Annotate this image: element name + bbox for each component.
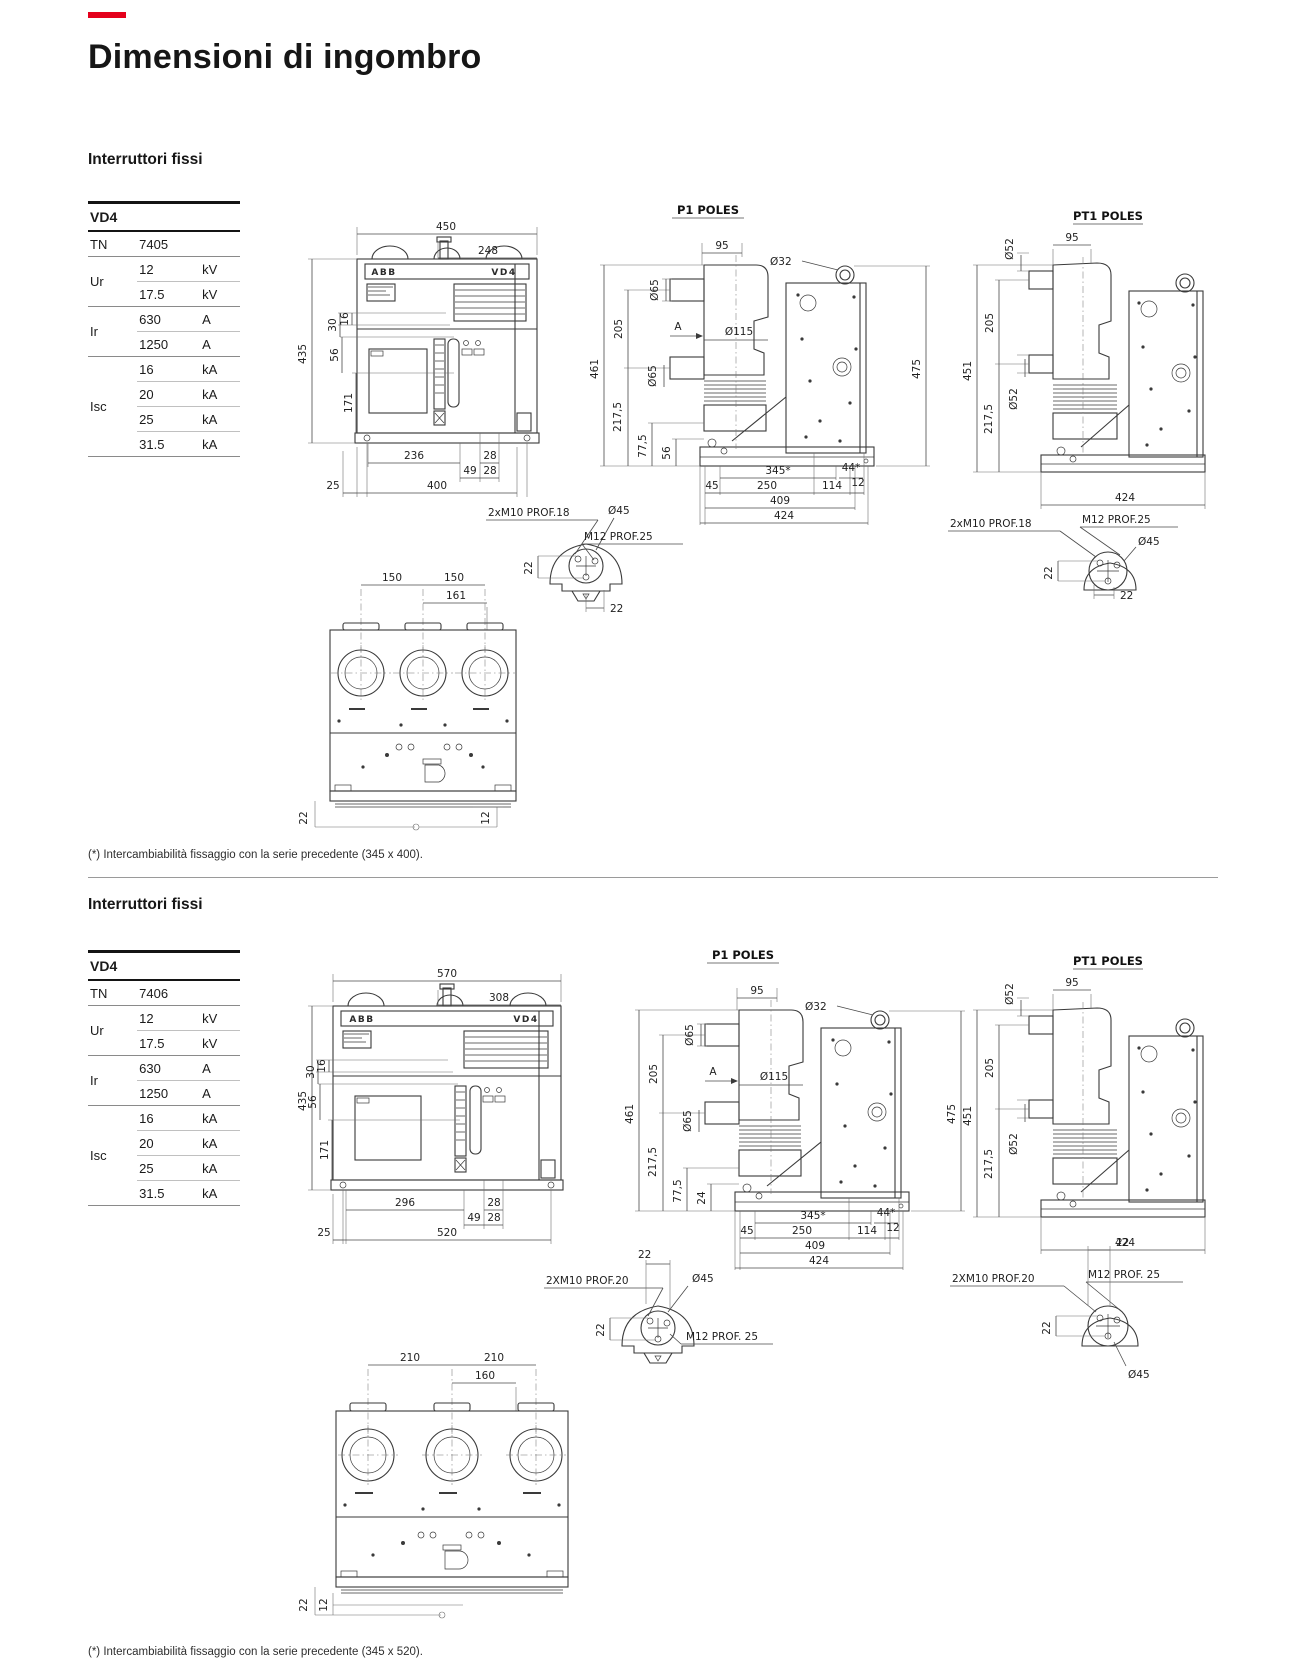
dim-label: 95 (715, 240, 728, 252)
leader-lines (950, 1250, 1183, 1366)
dim-label: 44* (877, 1207, 896, 1219)
dim-label: 25 (317, 1227, 330, 1239)
dim-label: 77,5 (672, 1179, 684, 1202)
dim-label: Ø65 (649, 279, 661, 301)
p1-poles-drawing-1: P1 POLES (558, 199, 938, 531)
dim-label: Ø45 (1138, 536, 1160, 548)
dim-label: 150 (444, 572, 464, 584)
dim-label: 217,5 (983, 1149, 995, 1179)
section-1-content: VD4 TN 7405 Ur 12 kV 17.5 kV Ir 630 A 12… (88, 195, 1218, 843)
row-unit: kA (200, 1156, 240, 1181)
row-unit: kA (200, 382, 240, 407)
dim-label: 56 (307, 1095, 319, 1109)
dim-label: Ø65 (682, 1110, 694, 1132)
bottom-view-drawing-1: 150 150 161 (303, 535, 543, 843)
dim-label: 171 (343, 393, 355, 413)
dim-label: 28 (487, 1212, 500, 1224)
row-value: 31.5 (137, 432, 200, 457)
pin-spec-label: M12 PROF.25 (584, 531, 653, 543)
row-value: 1250 (137, 1081, 200, 1106)
dim-label: 49 (463, 465, 476, 477)
dim-label: 250 (757, 480, 777, 492)
row-unit: kA (200, 357, 240, 382)
table-title: VD4 (88, 952, 240, 981)
row-value: 16 (137, 357, 200, 382)
footnote-1: (*) Intercambiabilità fissaggio con la s… (88, 849, 1218, 861)
bolt-holes (575, 556, 598, 599)
dimension-lines (361, 585, 487, 603)
row-unit: A (200, 307, 240, 332)
front-view-drawing-1: ABB VD4 450 248 435 30 16 56 (288, 201, 558, 519)
dim-label: 95 (1065, 977, 1078, 989)
terminal-detail-right-2: 22 2XM10 PROF.20 M12 PROF. 25 Ø45 22 (938, 1230, 1188, 1400)
dim-label: 22 (638, 1249, 651, 1261)
dim-label: 451 (962, 1106, 974, 1126)
bolt-spec-label: 2xM10 PROF.18 (950, 518, 1032, 530)
dim-label: 56 (329, 348, 341, 362)
dim-label: 205 (613, 319, 625, 339)
dim-label: 236 (404, 450, 424, 462)
dim-label: 150 (382, 572, 402, 584)
bottom-view-drawing-2: 210 210 160 (303, 1295, 573, 1627)
row-value: 630 (137, 1056, 200, 1081)
brand-label: ABB (349, 1015, 374, 1025)
dim-label: 171 (319, 1140, 331, 1160)
dim-label: 49 (467, 1212, 480, 1224)
pole-outline (1029, 263, 1205, 472)
row-value: 12 (137, 1006, 200, 1031)
bottom-dim-lines (315, 1587, 463, 1618)
dim-label: 461 (589, 359, 601, 379)
pole-details (735, 1038, 909, 1208)
dim-label: 210 (400, 1352, 420, 1364)
dim-label: Ø52 (1004, 983, 1016, 1005)
dim-label: Ø65 (684, 1024, 696, 1046)
drawing-title: P1 POLES (677, 203, 739, 217)
dim-label: Ø115 (760, 1071, 788, 1083)
dim-label: 114 (857, 1225, 877, 1237)
dim-label: 22 (1043, 566, 1055, 579)
dim-label: 12 (318, 1598, 330, 1611)
dim-label: 28 (483, 465, 496, 477)
dim-label: 217,5 (983, 404, 995, 434)
row-value: 17.5 (137, 1031, 200, 1056)
row-label: Isc (88, 1106, 137, 1206)
bolt-spec-label: 2XM10 PROF.20 (952, 1273, 1035, 1285)
dim-label: 424 (809, 1255, 829, 1267)
p1-poles-drawing-2: P1 POLES (593, 944, 973, 1276)
footnote-2: (*) Intercambiabilità fissaggio con la s… (88, 1646, 1218, 1658)
breaker-details (340, 1034, 554, 1188)
row-value: 16 (137, 1106, 200, 1131)
dim-label: 248 (478, 245, 498, 257)
datasheet-page: Dimensioni di ingombro Interruttori fiss… (0, 0, 1306, 1662)
dim-label: 160 (475, 1370, 495, 1382)
dim-label: 520 (437, 1227, 457, 1239)
row-label: Isc (88, 357, 137, 457)
row-value: 7405 (137, 231, 240, 257)
row-unit: kV (200, 257, 240, 282)
pole-outline (670, 265, 874, 466)
dim-label: 22 (298, 811, 310, 824)
row-unit: kA (200, 407, 240, 432)
section-arrow-label: A (709, 1066, 717, 1078)
dim-label: 24 (696, 1191, 708, 1205)
row-value: 31.5 (137, 1181, 200, 1206)
dim-label: 217,5 (612, 402, 624, 432)
row-unit: A (200, 1081, 240, 1106)
front-view-drawing-2: ABB VD4 570 308 435 30 16 56 (298, 948, 598, 1266)
row-unit: A (200, 1056, 240, 1081)
drawing-title: PT1 POLES (1073, 209, 1143, 223)
bottom-dim-lines (315, 801, 503, 830)
dim-label: 22 (595, 1323, 607, 1336)
dim-label: 56 (661, 446, 673, 460)
dim-label: 114 (822, 480, 842, 492)
pole-outline (1029, 1008, 1205, 1217)
pole-details (700, 293, 874, 463)
dim-label: 450 (436, 221, 456, 233)
dim-label: 570 (437, 968, 457, 980)
dim-label: 25 (326, 480, 339, 492)
row-unit: kA (200, 1106, 240, 1131)
dim-label: 345* (800, 1210, 825, 1222)
row-value: 25 (137, 1156, 200, 1181)
row-value: 7406 (137, 980, 240, 1006)
abb-red-dash (88, 12, 126, 18)
breaker-details (364, 287, 530, 441)
dim-label: 16 (316, 1059, 328, 1073)
row-value: 12 (137, 257, 200, 282)
dim-label: 424 (774, 510, 794, 522)
page-title: Dimensioni di ingombro (88, 38, 1218, 77)
row-unit: kA (200, 1131, 240, 1156)
dim-label: 22 (1041, 1321, 1053, 1334)
dim-label: 205 (984, 1058, 996, 1078)
row-label: Ir (88, 1056, 137, 1106)
extension-lines (1056, 1246, 1110, 1336)
row-value: 630 (137, 307, 200, 332)
spec-table-1: VD4 TN 7405 Ur 12 kV 17.5 kV Ir 630 A 12… (88, 201, 240, 457)
dim-label: 400 (427, 480, 447, 492)
bolt-spec-label: 2xM10 PROF.18 (488, 507, 570, 519)
row-label: Ir (88, 307, 137, 357)
section-heading-1: Interruttori fissi (88, 151, 1218, 169)
dim-label: 77,5 (637, 434, 649, 457)
row-value: 17.5 (137, 282, 200, 307)
pt1-poles-drawing-1: PT1 POLES (933, 205, 1233, 515)
row-value: 1250 (137, 332, 200, 357)
pin-spec-label: M12 PROF.25 (1082, 514, 1151, 526)
dim-label: 45 (705, 480, 718, 492)
dim-label: 22 (1116, 1237, 1129, 1249)
dim-label: 12 (480, 811, 492, 824)
dim-label: 205 (648, 1064, 660, 1084)
dim-label: 22 (610, 603, 623, 615)
dim-label: Ø52 (1008, 388, 1020, 410)
dim-label: 250 (792, 1225, 812, 1237)
dim-label: Ø45 (692, 1273, 714, 1285)
dim-label: 461 (624, 1104, 636, 1124)
row-unit: kV (200, 1031, 240, 1056)
dim-label: Ø52 (1004, 238, 1016, 260)
dim-label: 16 (339, 312, 351, 326)
dim-label: 409 (770, 495, 790, 507)
dim-label: Ø52 (1008, 1133, 1020, 1155)
dim-label: 22 (1120, 590, 1133, 602)
dim-label: 409 (805, 1240, 825, 1252)
dim-label: Ø45 (608, 505, 630, 517)
section-arrow-label: A (674, 321, 682, 333)
pt1-poles-drawing-2: PT1 POLES (933, 950, 1233, 1260)
dim-label: 22 (298, 1598, 310, 1611)
dim-label: 345* (765, 465, 790, 477)
dim-label: 95 (750, 985, 763, 997)
dim-label: 28 (487, 1197, 500, 1209)
dim-label: Ø65 (647, 365, 659, 387)
dim-label: 44* (842, 462, 861, 474)
dim-label: 451 (962, 361, 974, 381)
row-unit: kV (200, 282, 240, 307)
dimension-lines (977, 990, 1205, 1250)
section-divider (88, 877, 1218, 878)
dim-label: 45 (740, 1225, 753, 1237)
extension-lines (538, 556, 604, 612)
dim-label: 296 (395, 1197, 415, 1209)
dim-label: Ø32 (770, 256, 792, 268)
bolt-holes (1096, 1314, 1120, 1339)
dim-label: 308 (489, 992, 509, 1004)
row-label: Ur (88, 1006, 137, 1056)
terminal-detail-right-1: 2xM10 PROF.18 M12 PROF.25 Ø45 22 22 (938, 487, 1183, 605)
section-2-content: VD4 TN 7406 Ur 12 kV 17.5 kV Ir 630 A 12… (88, 940, 1218, 1640)
dim-label: 210 (484, 1352, 504, 1364)
row-label: TN (88, 980, 137, 1006)
pole-details (1041, 1046, 1205, 1209)
model-label: VD4 (513, 1015, 538, 1025)
row-label: TN (88, 231, 137, 257)
dim-label: Ø45 (1128, 1369, 1150, 1381)
row-value: 25 (137, 407, 200, 432)
pin-spec-label: M12 PROF. 25 (686, 1331, 758, 1343)
row-value: 20 (137, 1131, 200, 1156)
pin-spec-label: M12 PROF. 25 (1088, 1269, 1160, 1281)
dim-label: 217,5 (647, 1147, 659, 1177)
drawing-title: P1 POLES (712, 948, 774, 962)
bolt-spec-label: 2XM10 PROF.20 (546, 1275, 629, 1287)
dimension-lines (977, 245, 1205, 505)
row-unit: A (200, 332, 240, 357)
row-unit: kV (200, 1006, 240, 1031)
row-unit: kA (200, 432, 240, 457)
spec-table-2: VD4 TN 7406 Ur 12 kV 17.5 kV Ir 630 A 12… (88, 950, 240, 1206)
dim-label: Ø115 (725, 326, 753, 338)
row-value: 20 (137, 382, 200, 407)
dim-label: 205 (984, 313, 996, 333)
pole-outline (705, 1010, 909, 1211)
section-heading-2: Interruttori fissi (88, 896, 1218, 914)
brand-label: ABB (371, 268, 396, 278)
dim-label: 161 (446, 590, 466, 602)
dim-label: 435 (297, 344, 309, 364)
row-label: Ur (88, 257, 137, 307)
table-title: VD4 (88, 203, 240, 232)
dim-label: 30 (327, 318, 339, 331)
dim-label: Ø32 (805, 1001, 827, 1013)
dim-label: 475 (911, 359, 923, 379)
bolt-holes (647, 1318, 670, 1361)
row-unit: kA (200, 1181, 240, 1206)
drawing-title: PT1 POLES (1073, 954, 1143, 968)
model-label: VD4 (491, 268, 516, 278)
dim-label: 12 (886, 1222, 899, 1234)
dim-label: 95 (1065, 232, 1078, 244)
dim-label: 28 (483, 450, 496, 462)
dim-label: 12 (851, 477, 864, 489)
